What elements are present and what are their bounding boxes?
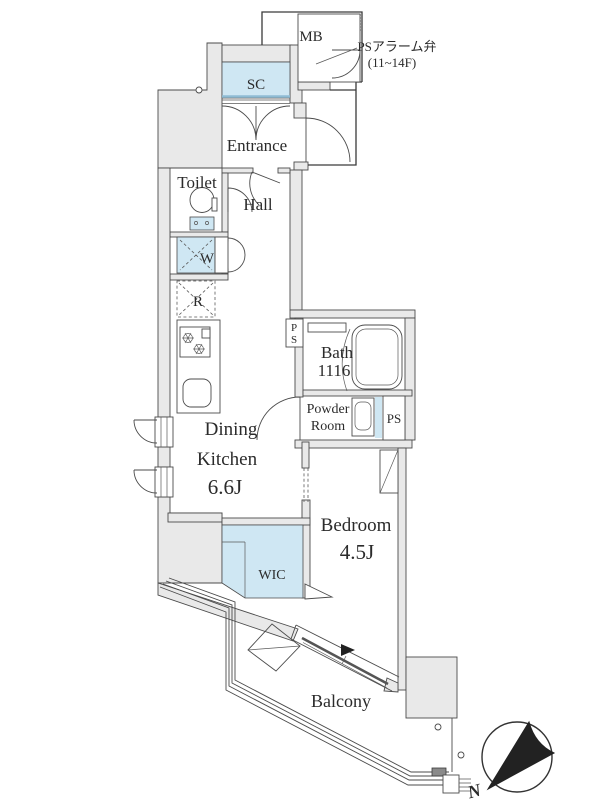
- kitchen-counter: [177, 320, 220, 413]
- washer-label: W: [200, 251, 215, 267]
- refrigerator-space: R: [177, 281, 215, 317]
- bath-counter: [308, 323, 346, 332]
- washer-space: W: [177, 237, 245, 273]
- kitchen-label: Kitchen: [197, 449, 258, 470]
- toilet-label: Toilet: [177, 173, 217, 192]
- vanity-icon: [352, 397, 382, 438]
- powder-door-arc: [257, 397, 300, 440]
- ps-upper-label-s: S: [291, 334, 297, 346]
- balcony-label: Balcony: [311, 691, 371, 711]
- mb-label: MB: [299, 29, 322, 45]
- compass-icon: N: [464, 722, 554, 800]
- stove-icon: [180, 327, 210, 357]
- ps-alarm-label-2: (11~14F): [368, 55, 416, 70]
- fitting-dot-2: [458, 752, 464, 758]
- peephole-icon: [196, 87, 202, 93]
- room-bath: Bath 1116: [308, 323, 402, 391]
- powder-label-2: Room: [311, 419, 345, 434]
- ps-alarm-label-1: PSアラーム弁: [357, 39, 436, 54]
- room-meter-box: MB PSアラーム弁 (11~14F): [298, 14, 437, 82]
- bathtub-icon: [352, 325, 402, 389]
- room-powder: Powder Room: [257, 397, 382, 440]
- sliding-door-track: [304, 468, 308, 502]
- shoe-closet-doors-arc: [222, 106, 290, 140]
- pipe-space-upper: P S: [286, 319, 303, 347]
- refrigerator-label: R: [193, 294, 203, 310]
- room-wic: WIC: [222, 525, 332, 599]
- room-bedroom: Bedroom 4.5J: [321, 450, 398, 564]
- front-door-arc: [306, 118, 350, 162]
- bath-size-label: 1116: [318, 361, 351, 380]
- dining-label: Dining: [205, 419, 258, 440]
- casement-window-2: [134, 467, 173, 497]
- kitchen-sink-icon: [183, 379, 211, 407]
- ps-upper-label-p: P: [291, 322, 297, 334]
- powder-label-1: Powder: [307, 402, 350, 417]
- washer-doors-arc: [228, 238, 245, 272]
- pipe-space-right: PS: [383, 396, 405, 440]
- room-toilet: Toilet: [177, 173, 252, 230]
- bedroom-size-label: 4.5J: [340, 540, 374, 564]
- toilet-icon: [190, 188, 217, 231]
- compass-north-label: N: [464, 779, 484, 800]
- floor-plan-svg: MB PSアラーム弁 (11~14F) SC Entrance Toilet H…: [0, 0, 600, 800]
- ps-right-label: PS: [387, 411, 401, 426]
- hall-label: Hall: [243, 195, 273, 214]
- pillar-box: [443, 775, 459, 793]
- wic-door-marker: [305, 584, 332, 599]
- casement-window-1: [134, 417, 173, 447]
- dk-size-label: 6.6J: [208, 475, 242, 499]
- bedroom-label: Bedroom: [321, 515, 392, 536]
- bath-label: Bath: [321, 343, 354, 362]
- fitting-dot: [435, 724, 441, 730]
- floor-plan-page: MB PSアラーム弁 (11~14F) SC Entrance Toilet H…: [0, 0, 600, 800]
- entrance-label: Entrance: [227, 136, 287, 155]
- room-hall: Hall: [243, 172, 280, 214]
- sliding-glass-door: [291, 625, 399, 691]
- sc-label: SC: [247, 77, 265, 93]
- wic-label: WIC: [258, 568, 285, 583]
